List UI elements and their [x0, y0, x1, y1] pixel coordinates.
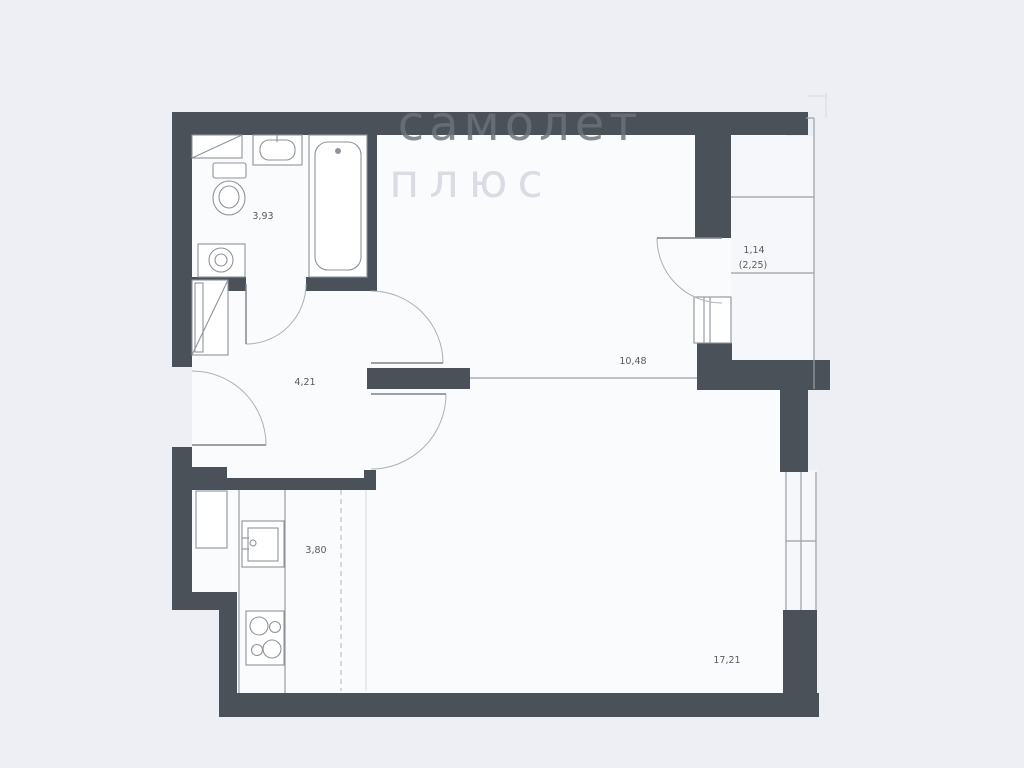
wall-kitchen-top — [227, 478, 376, 490]
hallway-area-label: 4,21 — [294, 377, 315, 388]
living-area-label: 17,21 — [713, 655, 740, 666]
balcony-area-label: 1,14 — [743, 245, 764, 256]
corridor-area-label: 10,48 — [619, 356, 646, 367]
wardrobe-icon — [192, 280, 228, 355]
wall-bathroom-bottom-right — [306, 277, 377, 291]
bathroom-area-label: 3,93 — [252, 211, 273, 222]
watermark-brand: самолет — [398, 96, 643, 152]
wall-left-upper — [172, 112, 192, 367]
wall-middle-pier — [367, 368, 470, 389]
vent-shaft-icon — [192, 135, 242, 158]
wall-right-lower — [783, 610, 817, 717]
balcony-window-block — [694, 297, 731, 343]
wall-balcony-upper — [695, 135, 731, 238]
kitchen-area-label: 3,80 — [305, 545, 326, 556]
stove-icon — [246, 611, 284, 665]
wall-bottom — [219, 693, 819, 717]
wall-right-upper — [780, 388, 808, 472]
balcony-area-unreduced-label: (2,25) — [739, 260, 768, 271]
toilet-icon — [213, 163, 246, 215]
wall-under-balcony — [697, 360, 830, 390]
kitchen-sink-icon — [242, 521, 284, 567]
watermark-plus: плюс — [389, 154, 553, 208]
sink-console-icon — [253, 135, 302, 165]
washing-machine-icon — [198, 244, 245, 277]
bathtub-icon — [309, 135, 367, 277]
wall-kitchen-junction — [172, 467, 227, 490]
floor-plan: самолет плюс — [0, 0, 1024, 768]
wall-door-stub — [364, 470, 376, 490]
fridge-icon — [196, 491, 227, 548]
dimension-ticks — [808, 93, 827, 118]
